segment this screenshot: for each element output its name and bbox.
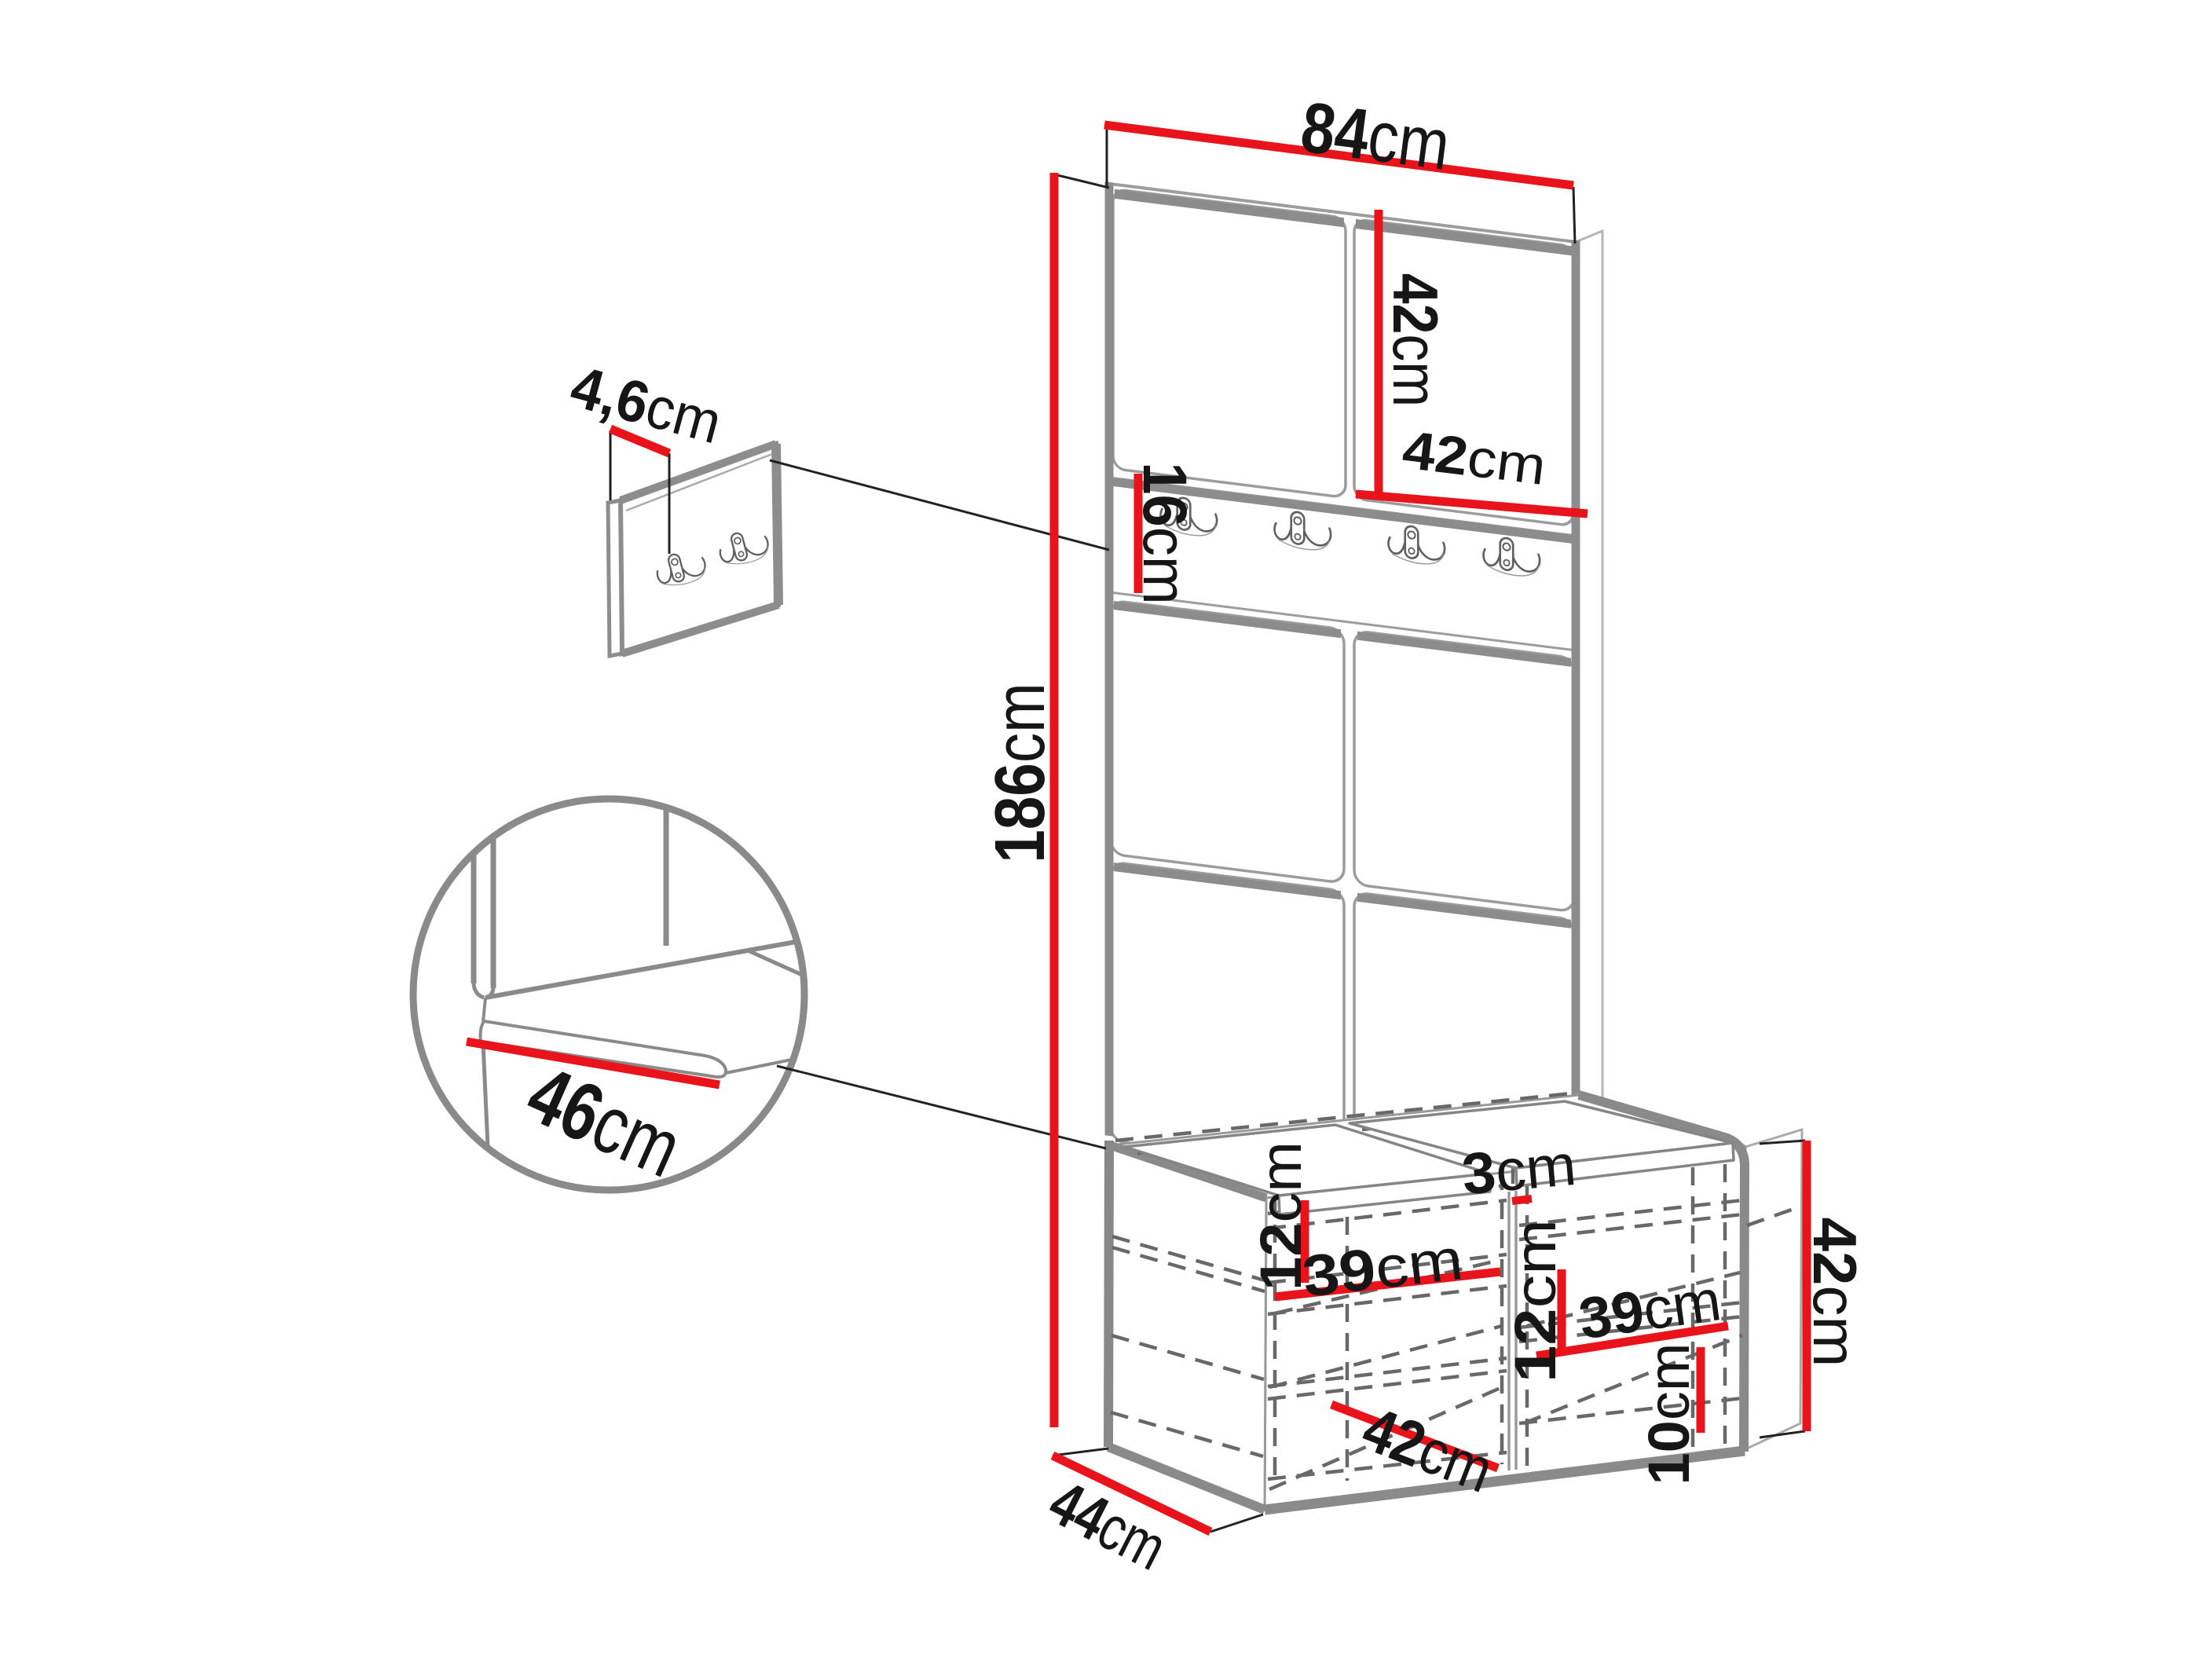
svg-text:16cm: 16cm [1130, 462, 1199, 605]
svg-text:12cm: 12cm [1503, 1219, 1568, 1382]
svg-text:3cm: 3cm [1459, 1132, 1579, 1207]
svg-text:42cm: 42cm [1800, 1218, 1870, 1368]
svg-text:186cm: 186cm [980, 683, 1059, 863]
svg-text:10cm: 10cm [1636, 1343, 1701, 1485]
svg-text:42cm: 42cm [1379, 273, 1450, 407]
